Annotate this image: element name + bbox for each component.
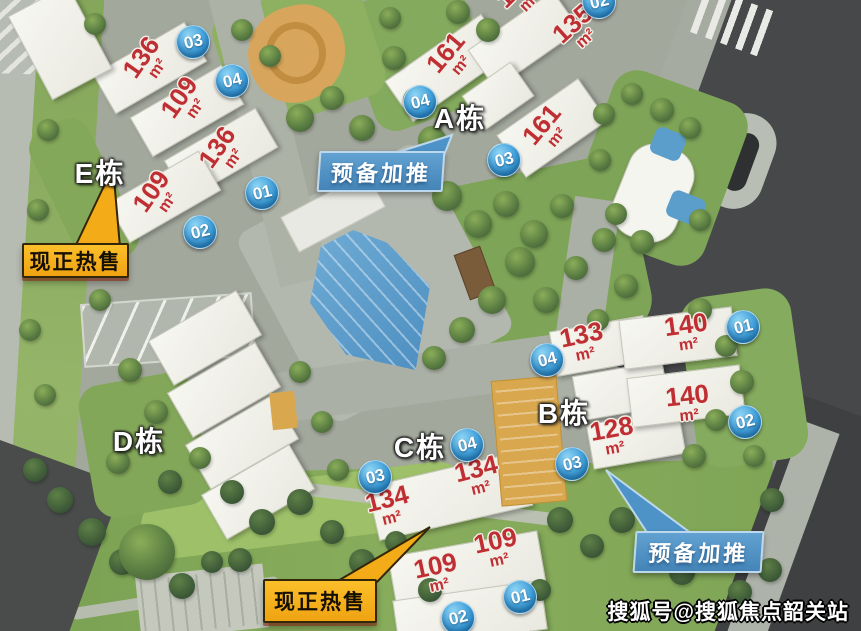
unit-number-text: 01: [731, 315, 754, 339]
unit-area-unit: m²: [381, 510, 403, 527]
unit-area-label: 109m²: [130, 167, 186, 224]
sale-callout: 现正热售: [22, 243, 129, 278]
unit-area-label: 133m²: [558, 320, 608, 366]
unit-area-unit: m²: [604, 441, 626, 457]
unit-number-marker: 04: [530, 343, 564, 377]
unit-number-text: 02: [733, 410, 756, 434]
building-name-label: C栋: [394, 426, 446, 466]
unit-number-marker: 01: [503, 580, 537, 614]
unit-area-label: 161m²: [424, 29, 481, 86]
unit-area-label: 140m²: [664, 383, 711, 425]
sale-callout: 现正热售: [263, 579, 377, 623]
unit-area-unit: m²: [489, 552, 511, 569]
unit-number-text: 03: [492, 148, 515, 172]
unit-number-text: 02: [188, 220, 211, 244]
unit-area-label: 109m²: [412, 551, 462, 597]
unit-number-text: 04: [455, 433, 478, 457]
building-name-label: D栋: [113, 420, 165, 460]
unit-area-label: 140m²: [663, 311, 711, 354]
unit-area-unit: m²: [679, 409, 700, 424]
unit-number-text: 02: [587, 0, 610, 14]
unit-number-text: 03: [560, 452, 583, 476]
unit-number-marker: 03: [555, 447, 589, 481]
unit-area-unit: m²: [678, 337, 699, 353]
unit-area-label: 109m²: [158, 73, 214, 130]
unit-number-text: 04: [220, 69, 243, 93]
unit-number-marker: 03: [358, 460, 392, 494]
unit-area-label: 136m²: [196, 123, 252, 180]
unit-number-text: 02: [446, 606, 469, 630]
unit-area-label: 109m²: [472, 526, 522, 572]
unit-number-text: 04: [408, 90, 431, 114]
unit-number-text: 03: [181, 30, 204, 54]
unit-number-marker: 02: [183, 215, 217, 249]
unit-area-value: 140: [663, 311, 709, 338]
unit-area-unit: m²: [575, 346, 597, 363]
unit-number-marker: 01: [726, 310, 760, 344]
unit-number-text: 01: [250, 181, 273, 205]
launch-callout: 预备加推: [317, 151, 446, 192]
unit-number-marker: 01: [245, 176, 279, 210]
unit-area-label: 136m²: [120, 33, 176, 90]
unit-area-unit: m²: [470, 480, 492, 497]
unit-number-marker: 03: [487, 143, 521, 177]
unit-number-marker: 04: [450, 428, 484, 462]
building-name-label: E栋: [75, 152, 126, 192]
watermark: 搜狐号@搜狐焦点韶关站: [608, 596, 849, 626]
unit-number-marker: 04: [215, 64, 249, 98]
unit-number-marker: 02: [728, 405, 762, 439]
unit-number-marker: 04: [403, 85, 437, 119]
unit-area-unit: m²: [429, 577, 451, 594]
building-name-label: A栋: [434, 97, 486, 137]
launch-callout: 预备加推: [633, 531, 765, 573]
unit-area-label: 161m²: [520, 101, 577, 158]
building-name-label: B栋: [538, 392, 590, 432]
unit-area-value: 128: [588, 415, 634, 444]
unit-number-marker: 03: [176, 25, 210, 59]
unit-area-label: 128m²: [588, 415, 637, 459]
unit-area-label: 135m²: [492, 0, 549, 23]
annotation-layer: E栋A栋D栋B栋C栋136m²109m²136m²109m²135m²161m²…: [0, 0, 861, 631]
unit-number-marker: 02: [441, 601, 475, 631]
residential-site-plan: E栋A栋D栋B栋C栋136m²109m²136m²109m²135m²161m²…: [0, 0, 861, 631]
unit-number-text: 04: [535, 348, 558, 372]
unit-number-text: 01: [508, 585, 531, 609]
unit-area-unit: m²: [518, 0, 541, 14]
unit-area-value: 140: [664, 383, 709, 409]
unit-number-text: 03: [363, 465, 386, 489]
